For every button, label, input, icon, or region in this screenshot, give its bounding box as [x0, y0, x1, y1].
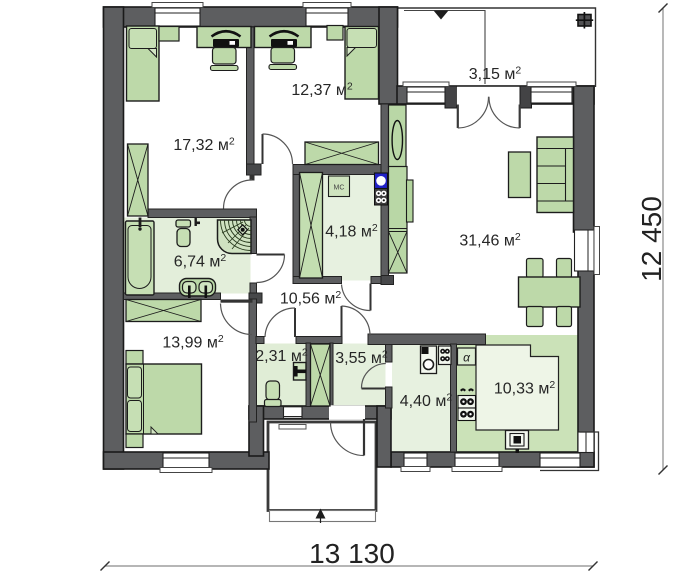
svg-text:13 130: 13 130 — [309, 538, 395, 569]
svg-text:10,56 м2: 10,56 м2 — [280, 289, 341, 308]
svg-text:10,33 м2: 10,33 м2 — [494, 379, 555, 398]
svg-text:3,55 м2: 3,55 м2 — [335, 349, 388, 368]
svg-text:2,31 м2: 2,31 м2 — [255, 347, 308, 366]
svg-text:31,46 м2: 31,46 м2 — [459, 231, 520, 250]
svg-text:12 450: 12 450 — [636, 196, 667, 282]
svg-text:4,40 м2: 4,40 м2 — [400, 392, 453, 411]
svg-text:12,37 м2: 12,37 м2 — [291, 81, 352, 100]
svg-text:17,32 м2: 17,32 м2 — [173, 136, 234, 155]
svg-text:4,18 м2: 4,18 м2 — [325, 222, 378, 241]
svg-text:3,15 м2: 3,15 м2 — [469, 65, 522, 84]
svg-text:α: α — [463, 351, 471, 365]
svg-text:МС: МС — [334, 185, 345, 192]
svg-text:6,74 м2: 6,74 м2 — [174, 252, 227, 271]
svg-text:13,99 м2: 13,99 м2 — [162, 333, 223, 352]
